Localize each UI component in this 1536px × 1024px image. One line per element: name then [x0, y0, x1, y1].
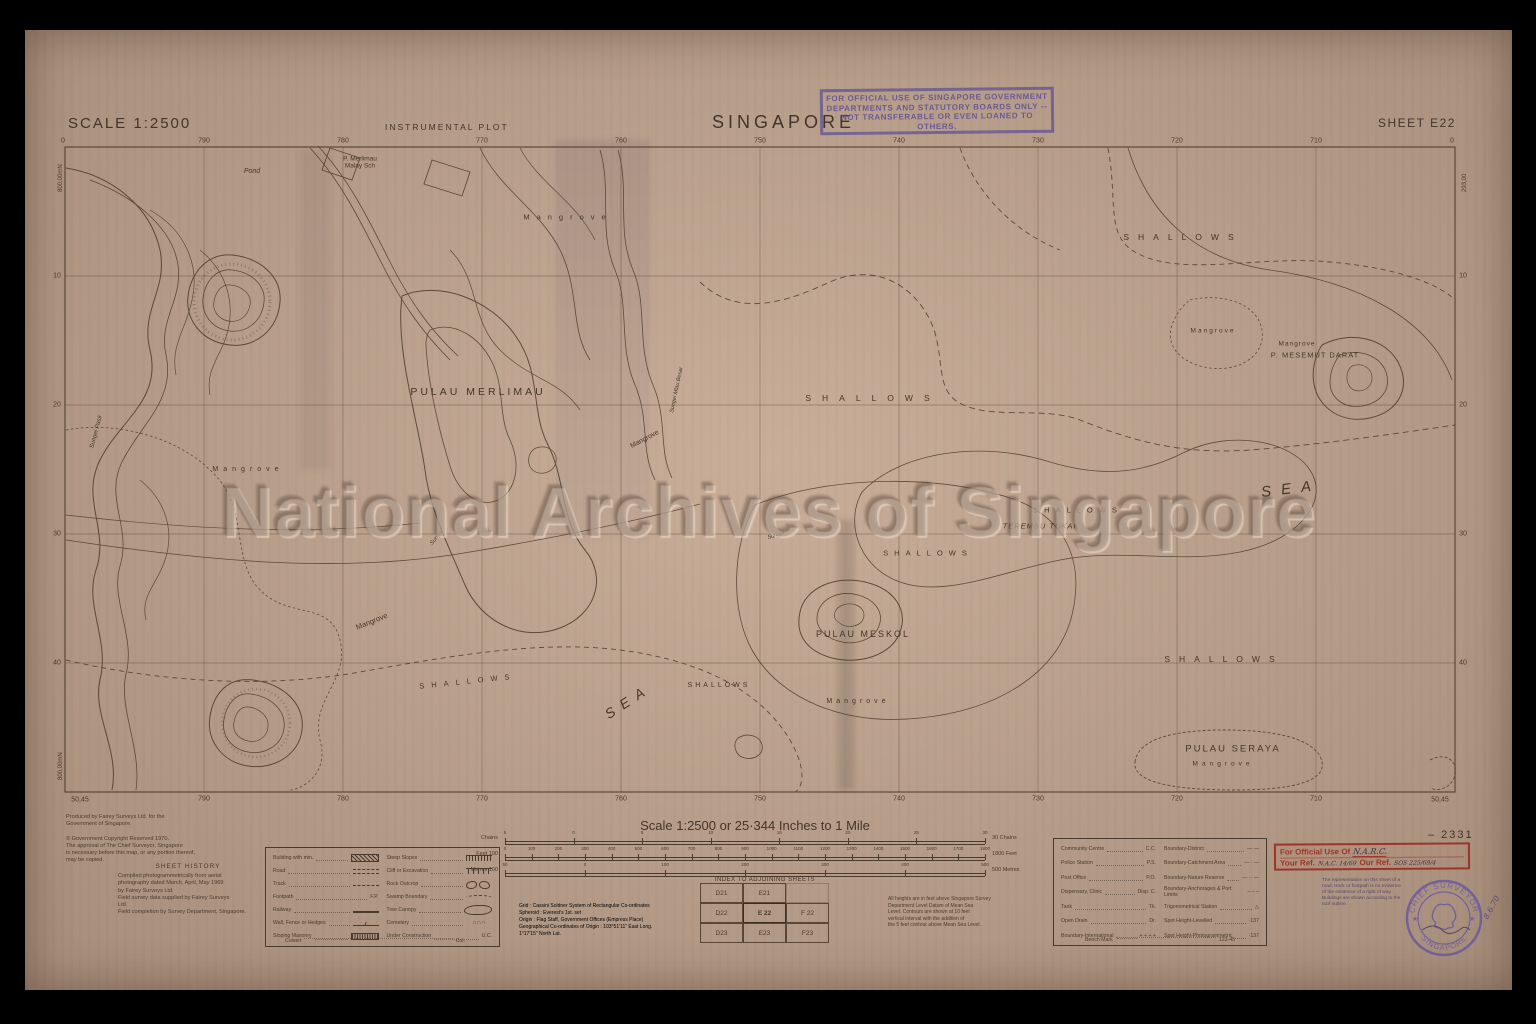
legend-row: Police StationP.S.: [1061, 859, 1156, 868]
symbol-swamp: [466, 895, 492, 900]
grid-coordinate-label: 293,00: [1462, 174, 1468, 192]
sheet-history-title: SHEET HISTORY: [118, 863, 258, 870]
legend-label: Culvert: [285, 938, 301, 944]
index-cell-blank: [786, 883, 829, 903]
legend-row: Building with min.: [273, 853, 379, 862]
grid-tick-label: 720: [1171, 796, 1183, 803]
stamp-handwriting: N.A.C. 14/69: [1318, 860, 1357, 867]
index-cell-D23: D23: [700, 923, 743, 943]
map-label: SHALLOWS: [805, 394, 940, 404]
index-cell-D21: D21: [700, 883, 743, 903]
legend-row: Tree Canopy: [387, 906, 493, 915]
grid-tick-label: 20: [53, 402, 61, 409]
legend-abbr: 123·45: [1219, 937, 1235, 943]
svg-text:SINGAPORE: SINGAPORE: [1419, 934, 1468, 953]
legend-abbr: P.O.: [1146, 875, 1156, 881]
map-label: P. Merlimau Malay Sch: [343, 156, 377, 171]
grid-tick-label: 740: [893, 138, 905, 145]
map-scale-label: SCALE 1:2500: [68, 115, 191, 132]
legend-row: FootpathF.P.: [273, 892, 379, 901]
scale-bar: 0100200300400500600700800900100011001200…: [505, 852, 985, 862]
grid-tick-label: 750: [754, 138, 766, 145]
grid-tick-label: 720: [1171, 138, 1183, 145]
symbol-track: [353, 885, 379, 886]
index-cell-E23: E23: [743, 923, 786, 943]
grid-tick-label: 760: [615, 796, 627, 803]
legend-row: Spot Height-Levelled·137: [1164, 917, 1259, 926]
legend-abbr: F.P.: [370, 894, 378, 900]
legend-culvert-row: Culvert Cul.: [285, 938, 465, 944]
legend-row: Steep Slopes: [387, 853, 493, 862]
svg-text:CHIEF SURVEYOR: CHIEF SURVEYOR: [1407, 881, 1480, 914]
map-label: Mangrove: [826, 698, 889, 706]
legend-abbr: — ·· —: [1242, 875, 1259, 881]
grid-tick-label: 0: [1450, 138, 1454, 145]
grid-tick-label: 790: [198, 138, 210, 145]
credits-text: Produced by Fairey Surveys Ltd. for the …: [66, 814, 256, 864]
narc-official-use-stamp: For Official Use Of N.A.R.C. Your Ref. N…: [1274, 842, 1470, 870]
serial-number: – 2331: [1428, 829, 1474, 841]
symbol-wall: [353, 925, 379, 926]
legend-row: Community CentreC.C.: [1061, 844, 1156, 853]
index-to-adjoining-sheets: D21E21D22E 22F 22D23E23F23: [700, 883, 829, 943]
legend-row: Boundary-District— —: [1164, 844, 1259, 853]
legend-row: Track: [273, 879, 379, 888]
grid-coordinate-label: 800,00mN: [58, 752, 64, 780]
svg-text:★: ★: [1412, 915, 1418, 923]
grid-tick-label: 790: [198, 796, 210, 803]
grid-tick-label: 750: [754, 796, 766, 803]
map-label: Pond: [244, 168, 260, 176]
legend-abbr: ·137: [1249, 918, 1259, 924]
grid-tick-label: 760: [615, 138, 627, 145]
legend-abbr: Disp. C.: [1138, 889, 1156, 895]
grid-tick-label: 770: [476, 138, 488, 145]
legend-row: TankTk.: [1061, 902, 1156, 911]
grid-tick-label: 770: [476, 796, 488, 803]
stamp-handwriting: N.A.R.C.: [1353, 847, 1389, 857]
grid-tick-label: 30: [1459, 531, 1467, 538]
svg-text:★: ★: [1469, 915, 1475, 923]
legend-row: Cemetery∩∩∩: [387, 919, 493, 928]
plot-type-label: INSTRUMENTAL PLOT: [385, 122, 509, 132]
legend-row: Open DrainDr.: [1061, 917, 1156, 926]
grid-tick-label: 710: [1310, 138, 1322, 145]
legend-label: Bench Mark: [1085, 937, 1113, 943]
scanned-map-sheet: SCALE 1:2500 INSTRUMENTAL PLOT SINGAPORE…: [0, 0, 1536, 1024]
index-cell-D22: D22: [700, 903, 743, 923]
index-cell-E21: E21: [743, 883, 786, 903]
map-label: SHALLOWS: [688, 682, 751, 690]
legend-bench-mark-row: Bench Mark 123·45: [1085, 937, 1235, 943]
map-label: SHALLOWS: [1164, 655, 1283, 665]
legend-row: Post OfficeP.O.: [1061, 873, 1156, 882]
legend-abbr: — —: [1247, 846, 1259, 852]
map-label: Mangrove: [1279, 340, 1316, 347]
grid-tick-label: 0: [61, 138, 65, 145]
grid-tick-label: 740: [893, 796, 905, 803]
stamp-handwriting: SOS 225/69/4: [1394, 860, 1437, 867]
grid-tick-label: 710: [1310, 796, 1322, 803]
legend-row: Dispensary, ClinicDisp. C.: [1061, 888, 1156, 897]
grid-tick-label: 780: [337, 138, 349, 145]
footer-scale-title: Scale 1:2500 or 25·344 Inches to 1 Mile: [640, 818, 870, 833]
legend-row: Cliff or Excavation: [387, 866, 493, 875]
grid-tick-label: 40: [1459, 660, 1467, 667]
index-cell-F22: F 22: [786, 903, 829, 923]
lion-crest-icon: [1432, 904, 1455, 929]
symbol-building: [351, 854, 379, 862]
index-cell-F23: F23: [786, 923, 829, 943]
grid-tick-label: 30: [53, 531, 61, 538]
symbol-rock: [466, 880, 492, 888]
stamp-label: Our Ref.: [1359, 858, 1391, 867]
map-label: PULAU SERAYA: [1185, 745, 1280, 756]
legend-abbr: Cul.: [456, 938, 465, 944]
stamp-label: Your Ref.: [1280, 858, 1315, 867]
right-of-way-note: The representation on this sheet of a ro…: [1322, 878, 1408, 908]
sheet-history: SHEET HISTORY Compiled photogrammetrical…: [118, 863, 258, 916]
legend-abbr: — · —: [1244, 860, 1259, 866]
chief-surveyor-stamp: CHIEF SURVEYOR SINGAPORE ★ ★: [1404, 878, 1484, 958]
legend-abbr: U.C.: [482, 933, 492, 939]
grid-datum-info: Grid : Cassini Soldner System of Rectang…: [519, 903, 679, 938]
legend-row: Wall, Fence or Hedges: [273, 919, 379, 928]
symbol-road: [353, 869, 379, 874]
archives-watermark: National Archives of Singapore: [220, 471, 1316, 553]
map-label: PULAU MERLIMAU: [410, 386, 545, 398]
legend-abbr: – – –: [1247, 889, 1259, 895]
symbol-railway: [353, 911, 379, 913]
legend-abbr: ·137: [1249, 933, 1259, 939]
grid-tick-label: 10: [53, 273, 61, 280]
legend-row: Boundary-Anchorages & Port Limits– – –: [1164, 888, 1259, 897]
grid-tick-label: 40: [53, 660, 61, 667]
scale-bar: 5051015202530Chains30 Chains: [505, 836, 985, 846]
legend-abbreviations-box: Community CentreC.C.Police StationP.S.Po…: [1053, 838, 1267, 946]
legend-row: Swamp Boundary: [387, 892, 493, 901]
map-label: SHALLOWS: [1123, 233, 1242, 243]
index-cell-E22: E 22: [743, 903, 786, 923]
heights-note: All heights are in feet above Singapore …: [888, 896, 1000, 929]
legend-symbols-box: Building with min.RoadTrackFootpathF.P.R…: [265, 847, 500, 947]
grid-tick-label: 50,45: [1431, 797, 1449, 804]
grid-tick-label: 10: [1459, 273, 1467, 280]
grid-tick-label: 780: [337, 796, 349, 803]
official-use-stamp: FOR OFFICIAL USE OF SINGAPORE GOVERNMENT…: [820, 87, 1054, 135]
grid-coordinate-label: 800,00mN: [58, 164, 64, 192]
symbol-cem: ∩∩∩: [466, 919, 492, 927]
sheet-history-text: Compiled photogrammetrically from aerial…: [118, 873, 258, 916]
grid-tick-label: 730: [1032, 138, 1044, 145]
map-label: P. MESEMUT DARAT: [1271, 352, 1360, 361]
grid-tick-label: 20: [1459, 402, 1467, 409]
stamp-label: For Official Use Of: [1280, 847, 1350, 856]
legend-abbr: Dr.: [1149, 918, 1156, 924]
map-label: Mangrove: [523, 214, 612, 223]
legend-abbr: Tk.: [1149, 904, 1156, 910]
legend-row: Rock Outcrop: [387, 879, 493, 888]
symbol-cliff: [466, 868, 492, 874]
legend-abbr: △: [1255, 904, 1259, 910]
legend-abbr: C.C.: [1146, 846, 1156, 852]
legend-row: Boundary-Catchment Area— · —: [1164, 859, 1259, 868]
legend-row: Trigonometrical Station△: [1164, 902, 1259, 911]
map-label: Mangrove: [1191, 327, 1236, 334]
legend-row: Boundary-Nature Reserve— ·· —: [1164, 873, 1259, 882]
legend-row: Road: [273, 866, 379, 875]
legend-row: Railway: [273, 906, 379, 915]
grid-tick-label: 730: [1032, 796, 1044, 803]
grid-tick-label: 50,45: [71, 797, 89, 804]
map-label: Mangrove: [1193, 760, 1254, 767]
symbol-steep: [466, 855, 492, 861]
sheet-number-label: SHEET E22: [1378, 116, 1456, 130]
legend-abbr: P.S.: [1147, 860, 1156, 866]
symbol-tree: [464, 905, 492, 915]
map-label: PULAU MESKOL: [816, 629, 910, 639]
